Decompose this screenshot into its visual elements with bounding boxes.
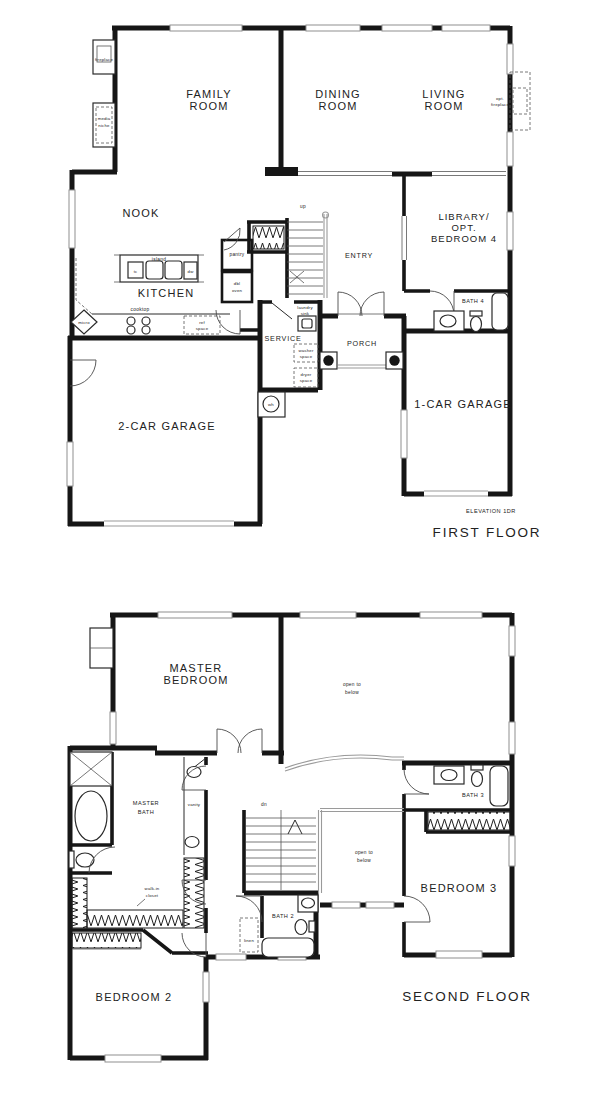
bath4-tub xyxy=(492,293,508,330)
rail-newel xyxy=(323,212,329,218)
opt-fireplace-label: opt. xyxy=(496,96,504,101)
rail-segment xyxy=(332,902,360,908)
vanity-sink xyxy=(187,767,201,778)
window xyxy=(300,612,356,618)
cooktop-burners xyxy=(127,317,150,334)
window xyxy=(110,712,116,744)
second-floor-plan: MASTER BEDROOM open to below MASTER BATH… xyxy=(69,612,532,1062)
bath3-label: BATH 3 xyxy=(462,792,484,798)
window xyxy=(436,951,482,958)
stairs-dn-label: dn xyxy=(261,802,267,807)
stair-break-mark xyxy=(290,271,304,283)
entry-label: ENTRY xyxy=(345,251,373,260)
laundry-sink-label: sink xyxy=(301,311,310,316)
bath2-toilet xyxy=(295,920,307,935)
bath2-tub xyxy=(262,938,314,957)
bedroom2-label: BEDROOM 2 xyxy=(96,991,173,1003)
master-bedroom-label: BEDROOM xyxy=(163,674,228,686)
laundry-sink-basin xyxy=(302,319,312,328)
bath4-toilet xyxy=(471,317,482,332)
rail-segment xyxy=(366,902,394,908)
master-tub xyxy=(75,791,107,841)
pantry-label: pantry xyxy=(229,252,244,257)
bedroom2-closet-rod xyxy=(72,933,141,948)
dryer-space-label: dryer xyxy=(301,372,312,377)
rail-segment xyxy=(216,954,246,960)
service-label: SERVICE xyxy=(264,334,301,343)
window xyxy=(507,132,513,166)
living-room-label: LIVING xyxy=(422,88,465,100)
first-floor-title: FIRST FLOOR xyxy=(433,525,542,540)
bedroom3-closet-rod xyxy=(428,812,510,830)
second-floor-stairs xyxy=(246,810,316,890)
island-label: island xyxy=(152,257,166,262)
opt-fireplace-label: fireplace xyxy=(491,102,509,107)
linen-label: linen xyxy=(244,938,254,943)
floor-plan-sheet: FAMILY ROOM DINING ROOM LIVING ROOM NOOK… xyxy=(0,0,604,1100)
window xyxy=(401,410,407,458)
master-double-door xyxy=(217,729,262,753)
window xyxy=(69,190,75,248)
island-sink-left xyxy=(146,261,163,279)
nook-label: NOOK xyxy=(122,207,159,219)
media-niche-label: media xyxy=(98,116,111,121)
first-floor-plan: FAMILY ROOM DINING ROOM LIVING ROOM NOOK… xyxy=(67,25,541,540)
wall-cap xyxy=(265,167,298,176)
window xyxy=(382,25,432,31)
closet-rod xyxy=(72,878,87,928)
bath2-sink xyxy=(302,898,315,908)
dryer-space-label: space xyxy=(300,378,313,383)
garage-door-lines xyxy=(104,491,488,526)
window xyxy=(509,722,515,754)
laundry-door xyxy=(272,303,292,319)
stair-treads xyxy=(246,810,316,890)
stairs-up-label: up xyxy=(300,204,306,209)
first-floor-stairs xyxy=(253,212,329,298)
window xyxy=(420,612,482,618)
vanity-label: vanity xyxy=(188,802,201,807)
window xyxy=(442,25,490,31)
service-fixtures xyxy=(258,316,318,417)
window xyxy=(306,25,360,31)
opt-fireplace-group xyxy=(510,72,530,130)
laundry-sink-label: laundry xyxy=(297,305,313,310)
open-below-label: below xyxy=(345,690,359,695)
open-below-mid-label: open to xyxy=(355,850,373,855)
toilet-tank xyxy=(69,851,74,868)
toilet-room-door xyxy=(89,847,115,873)
window xyxy=(507,44,513,74)
balcony-rail-curve xyxy=(285,755,404,771)
porch-column xyxy=(323,355,333,365)
island-sink-right xyxy=(165,261,182,279)
ref-space-label: space xyxy=(196,326,209,331)
bath3-tub xyxy=(490,766,508,806)
bath3-toilet-tank xyxy=(471,765,483,770)
stair-rail xyxy=(324,214,327,298)
bath3-toilet xyxy=(472,772,483,787)
dbl-oven-label: oven xyxy=(232,288,243,293)
porch-edge xyxy=(338,365,386,368)
master-bedroom-label: MASTER xyxy=(169,662,222,674)
fireplace-label: fireplace xyxy=(95,57,113,62)
vanity-sink xyxy=(185,837,199,848)
second-floor-title: SECOND FLOOR xyxy=(402,989,532,1004)
window xyxy=(105,1055,161,1062)
bedroom3-label: BEDROOM 3 xyxy=(421,882,498,894)
counter-dashed-edge xyxy=(76,258,92,314)
window xyxy=(203,972,209,1002)
first-floor-labels: FAMILY ROOM DINING ROOM LIVING ROOM NOOK… xyxy=(78,57,541,540)
garage1-label: 1-CAR GARAGE xyxy=(414,398,512,410)
ref-space-label: ref xyxy=(199,320,205,325)
bath2-label: BATH 2 xyxy=(272,913,294,919)
closet-rod xyxy=(184,858,204,928)
open-below-mid-label: below xyxy=(357,858,371,863)
family-room-label: ROOM xyxy=(189,100,228,112)
coat-closet-rod xyxy=(253,226,284,249)
bath3-door xyxy=(404,769,429,794)
master-bath-label: MASTER xyxy=(133,800,159,806)
open-below-label: open to xyxy=(343,682,361,687)
walkin-closet-label: walk-in xyxy=(145,886,160,891)
bath4-sink xyxy=(440,315,456,327)
stair-treads xyxy=(287,222,323,294)
opt-fireplace-inner xyxy=(513,88,527,114)
garage-side-door xyxy=(70,360,96,386)
window xyxy=(507,212,513,250)
entry-double-door xyxy=(338,292,384,316)
garage2-label: 2-CAR GARAGE xyxy=(118,420,216,432)
porch-label: PORCH xyxy=(347,339,377,348)
washer-space-label: washer xyxy=(298,348,313,353)
tc-label: tc xyxy=(134,269,138,274)
dbl-oven-label: dbl xyxy=(234,281,240,286)
window xyxy=(170,25,242,31)
bath4-label: BATH 4 xyxy=(462,298,484,304)
porch-columns xyxy=(320,352,403,369)
bath4-toilet-tank xyxy=(470,311,482,316)
micro-label: micro xyxy=(78,320,90,325)
interior-walls xyxy=(240,174,510,330)
closet-rod xyxy=(87,910,183,928)
walkin-leader-line xyxy=(137,899,145,906)
window xyxy=(67,442,73,486)
window xyxy=(509,836,515,866)
master-bath-fixtures xyxy=(69,752,206,948)
elevation-note: ELEVATION 1DR xyxy=(466,508,516,514)
porch-column xyxy=(389,355,399,365)
washer-space-label: space xyxy=(300,354,313,359)
kitchen-fixtures xyxy=(71,228,252,334)
bedroom3-door xyxy=(404,896,430,922)
bath3-sink xyxy=(441,770,457,781)
dining-room-label: ROOM xyxy=(318,100,357,112)
master-bath-label: BATH xyxy=(138,809,155,815)
wh-label: wh xyxy=(268,402,274,407)
dw-label: dw xyxy=(188,269,195,274)
bath2-toilet-tank xyxy=(309,921,315,932)
toilet xyxy=(76,853,94,867)
direction-arrow xyxy=(288,820,302,834)
window xyxy=(158,612,232,618)
library-label: BEDROOM 4 xyxy=(431,233,497,244)
walkin-closet-label: closet xyxy=(146,893,159,898)
kitchen-label: KITCHEN xyxy=(138,287,195,299)
bath2-fixtures xyxy=(240,895,318,957)
family-room-label: FAMILY xyxy=(186,88,232,100)
window xyxy=(509,626,515,656)
living-room-label: ROOM xyxy=(424,100,463,112)
media-niche-label: niche xyxy=(98,123,110,128)
linen-closet xyxy=(240,918,258,952)
library-label: OPT. xyxy=(451,222,476,233)
cooktop-label: cooktop xyxy=(131,307,150,312)
bath2-door xyxy=(236,896,262,922)
library-label: LIBRARY/ xyxy=(438,211,489,222)
dining-room-label: DINING xyxy=(315,88,361,100)
floor-plan-drawing: FAMILY ROOM DINING ROOM LIVING ROOM NOOK… xyxy=(0,0,604,1100)
